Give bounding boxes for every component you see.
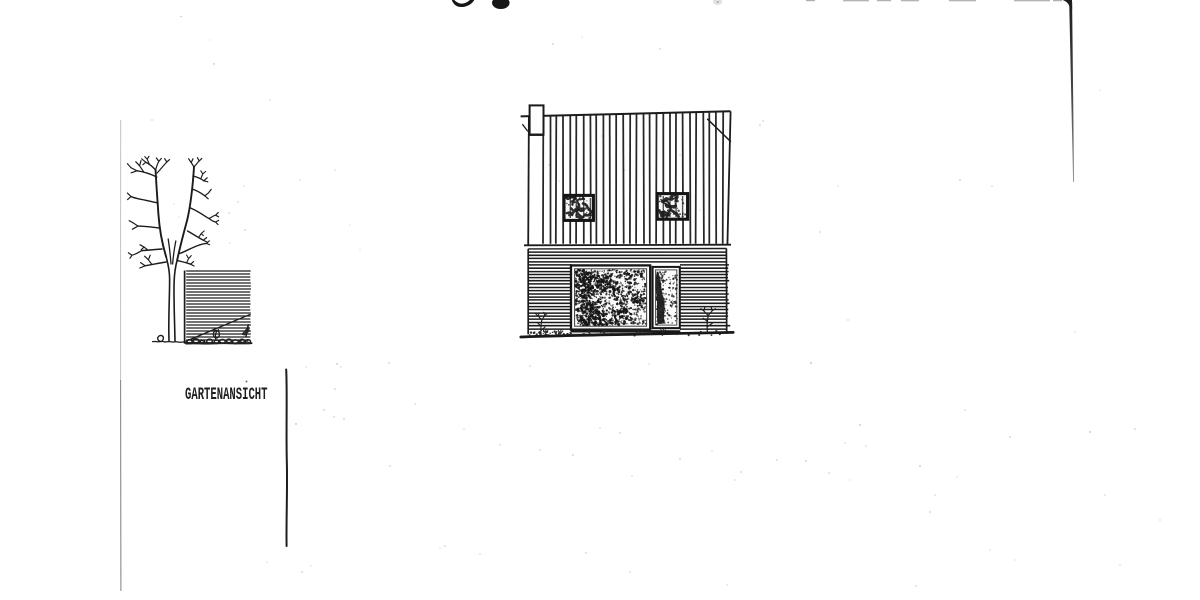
svg-text:GARTENANSICHT: GARTENANSICHT	[185, 385, 268, 405]
